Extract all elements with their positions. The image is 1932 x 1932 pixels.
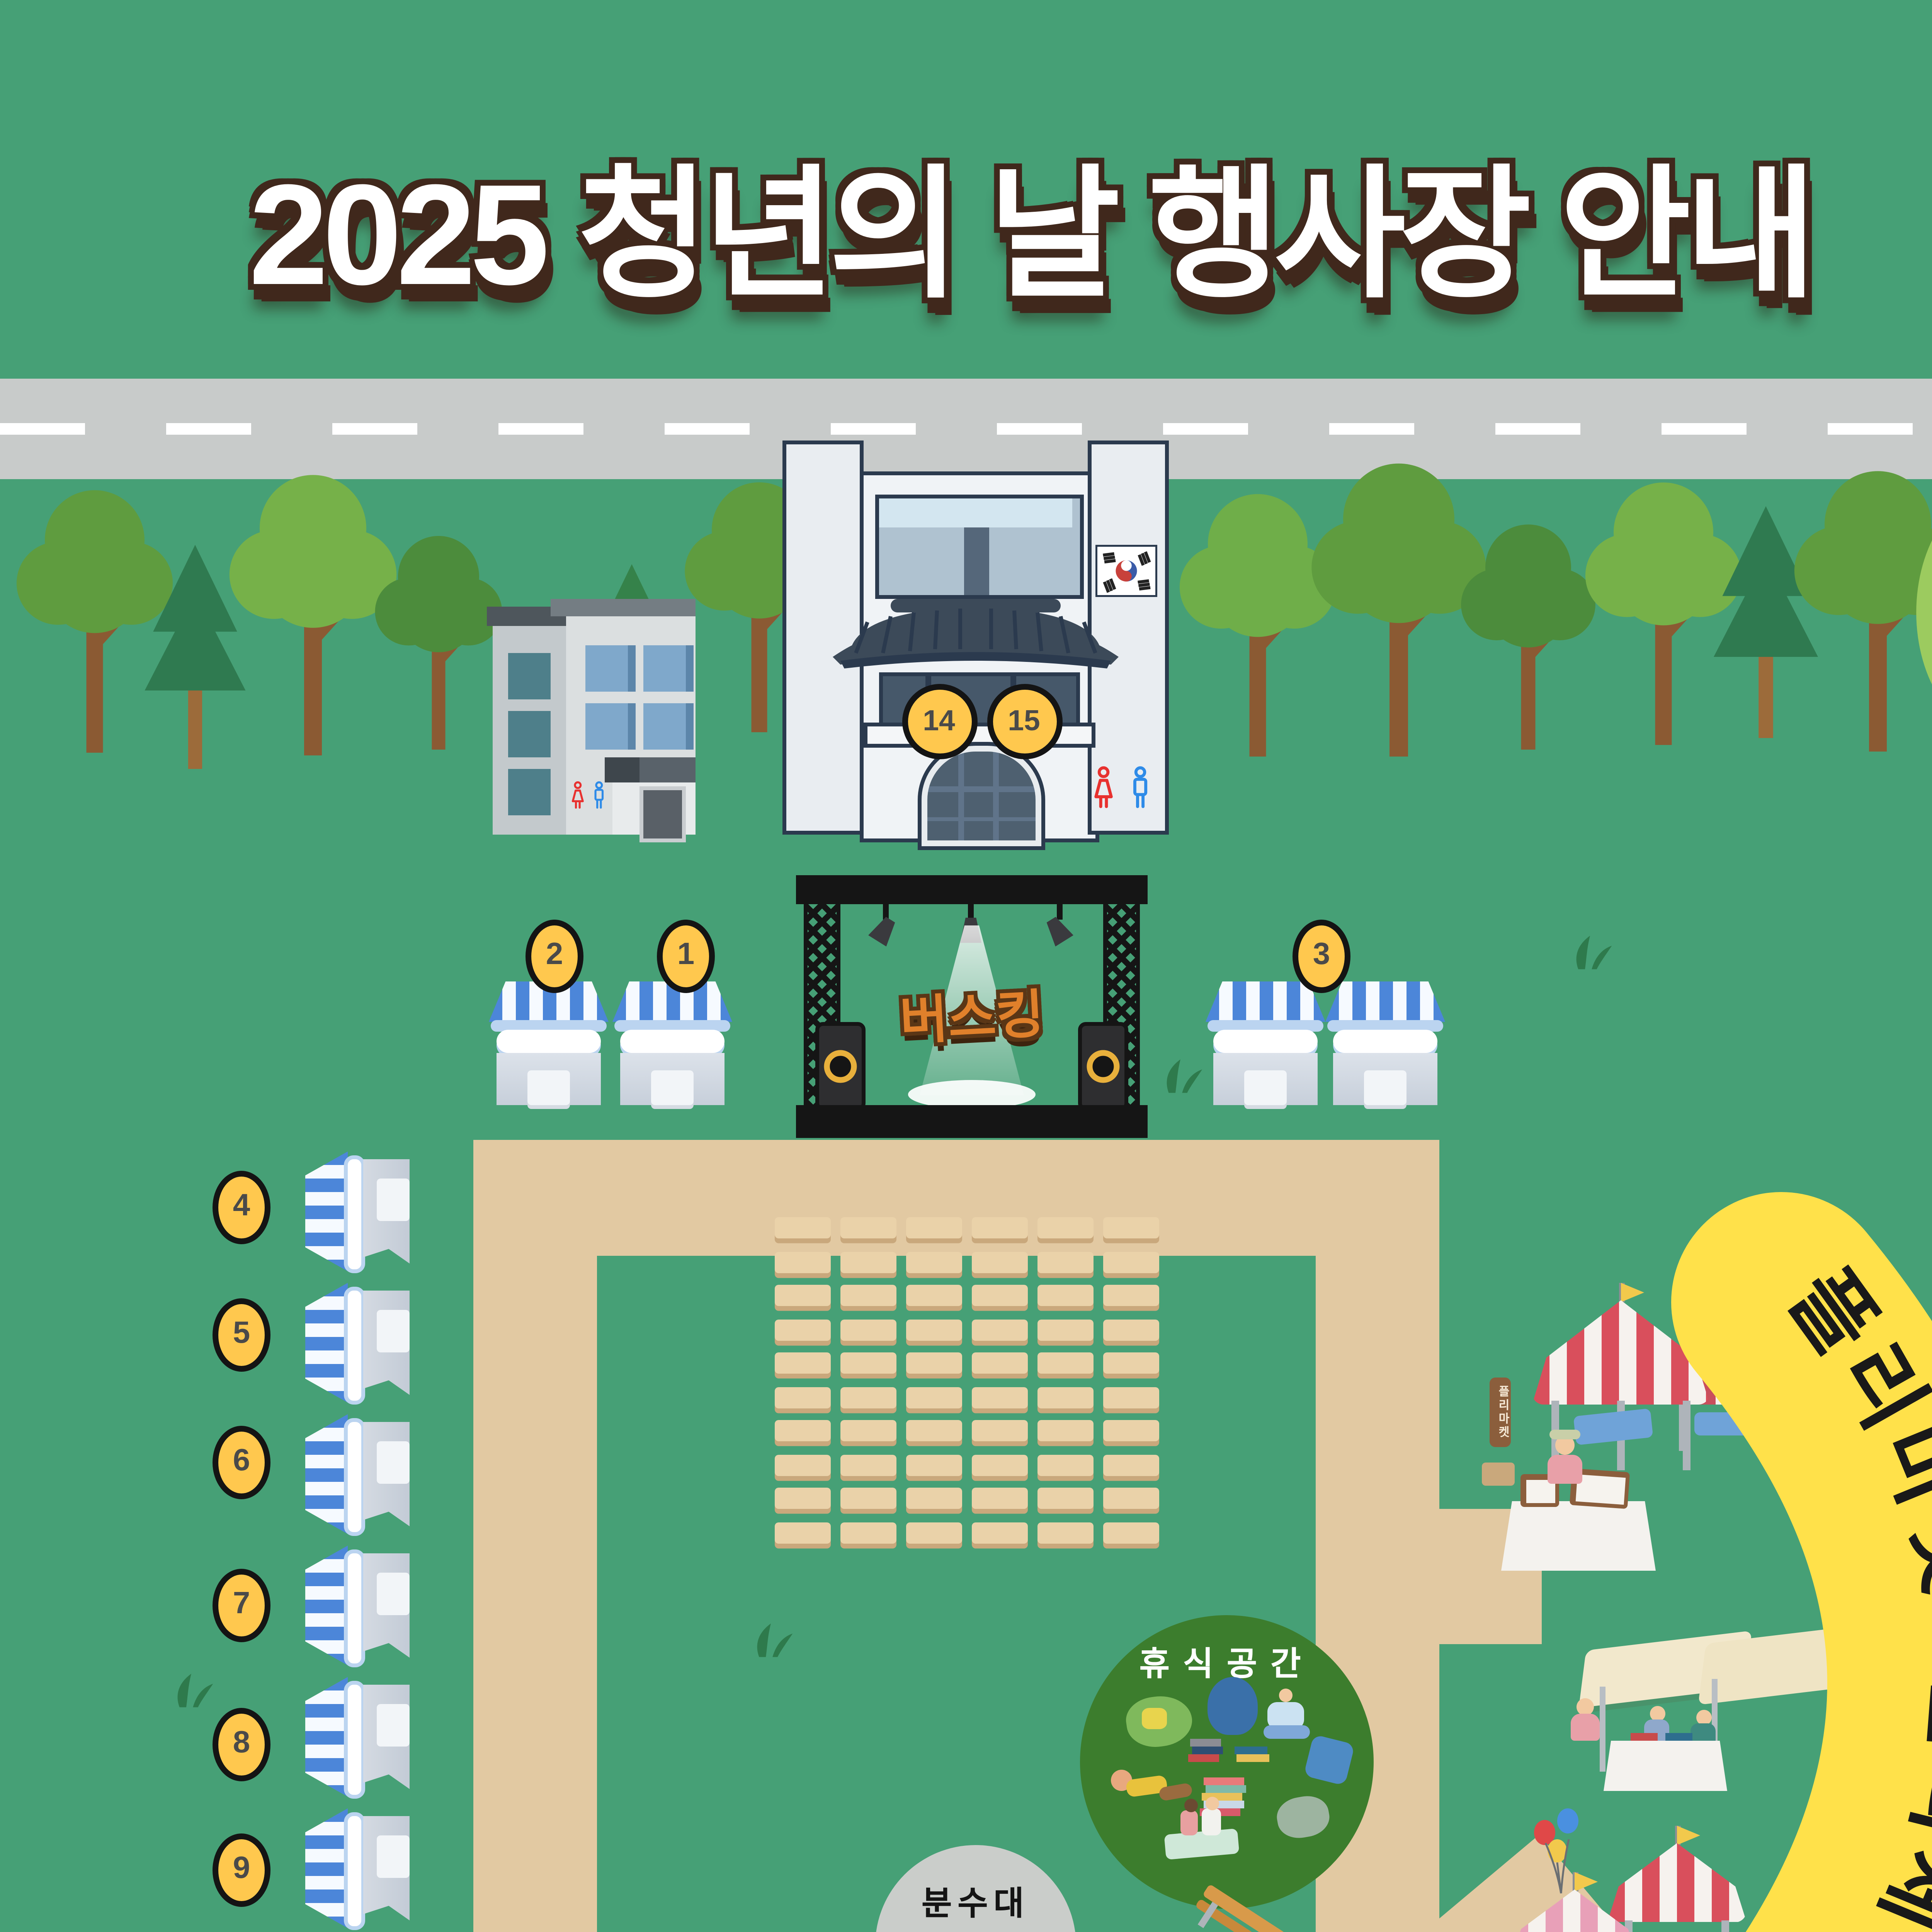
- bench-seat: [775, 1352, 831, 1374]
- bench-seat: [972, 1488, 1028, 1509]
- bench-seat: [906, 1285, 962, 1306]
- bench-seat: [906, 1352, 962, 1374]
- booth-marker-number: 7: [233, 1588, 250, 1623]
- grass-icon: [1565, 935, 1615, 980]
- booth-marker-number: 14: [923, 705, 955, 738]
- road-lane-dashes: [0, 423, 1932, 435]
- fountain-label: 분수대: [875, 1876, 1076, 1924]
- path-left: [473, 1140, 597, 1932]
- bench-seat: [840, 1522, 896, 1543]
- bench-seat: [1103, 1420, 1159, 1441]
- bench-seat: [1037, 1522, 1094, 1543]
- fountain: 분수대: [875, 1845, 1076, 1932]
- bench-seat: [972, 1285, 1028, 1306]
- bench-seat: [840, 1386, 896, 1408]
- bench-seat: [775, 1420, 831, 1441]
- bench-seat: [906, 1488, 962, 1509]
- bench-seat: [840, 1352, 896, 1374]
- bench-seat: [840, 1251, 896, 1272]
- booth-tent: [305, 1151, 410, 1271]
- tree-icon: [1457, 522, 1600, 750]
- booth-marker-number: 2: [546, 939, 563, 974]
- bench-seat: [775, 1522, 831, 1543]
- grass-icon: [1155, 1059, 1206, 1103]
- bench-seat: [972, 1454, 1028, 1475]
- booth-marker-number: 6: [233, 1445, 250, 1480]
- bench-seat: [1037, 1352, 1094, 1374]
- hanok-roof: [829, 583, 1122, 676]
- booth-marker-2: 2: [526, 920, 583, 993]
- booth-marker-number: 4: [233, 1190, 250, 1225]
- booth-tent: [305, 1546, 410, 1665]
- flea-market-sign: 플리마켓: [1490, 1378, 1511, 1447]
- bench-seat: [775, 1488, 831, 1509]
- bench-seat: [972, 1352, 1028, 1374]
- bench-seat: [1037, 1251, 1094, 1272]
- bench-seat: [1037, 1319, 1094, 1340]
- bench-seat: [775, 1251, 831, 1272]
- bench-seat: [775, 1454, 831, 1475]
- bench-seat: [972, 1420, 1028, 1441]
- bench-seat: [1103, 1251, 1159, 1272]
- bench-seat: [1103, 1522, 1159, 1543]
- bench-seat: [906, 1319, 962, 1340]
- path-top: [473, 1140, 1439, 1256]
- restroom-building: [493, 599, 696, 835]
- bench-seat: [906, 1454, 962, 1475]
- bench-seat: [906, 1217, 962, 1238]
- bench-seat: [840, 1319, 896, 1340]
- bench-seat: [906, 1386, 962, 1408]
- booth-marker-8: 8: [213, 1708, 270, 1781]
- booth-tent: [1206, 981, 1325, 1105]
- booth-marker-3: 3: [1293, 920, 1350, 993]
- grass-icon: [166, 1673, 216, 1718]
- tree-icon: [1913, 479, 1932, 764]
- booth-marker-number: 3: [1313, 939, 1330, 974]
- bench-seat: [972, 1522, 1028, 1543]
- bench-seat: [840, 1285, 896, 1306]
- bench-seat: [1103, 1488, 1159, 1509]
- tree-icon: [371, 533, 506, 750]
- bench-seat: [1037, 1386, 1094, 1408]
- bench-seat: [840, 1488, 896, 1509]
- bench-seat: [1103, 1217, 1159, 1238]
- bench-seat: [906, 1420, 962, 1441]
- female-restroom-icon: [1092, 765, 1116, 815]
- bench-seat: [1103, 1352, 1159, 1374]
- bench-seat: [1037, 1217, 1094, 1238]
- booth-tent: [305, 1808, 410, 1928]
- bench-seat: [1103, 1285, 1159, 1306]
- bench-seat: [972, 1251, 1028, 1272]
- bench-seat: [775, 1285, 831, 1306]
- bench-seat: [840, 1420, 896, 1441]
- bench-seat: [1037, 1285, 1094, 1306]
- bench-seat: [1103, 1319, 1159, 1340]
- booth-marker-9: 9: [213, 1833, 270, 1907]
- bench-seat: [1037, 1420, 1094, 1441]
- bench-seat: [972, 1319, 1028, 1340]
- booth-marker-number: 8: [233, 1727, 250, 1762]
- booth-marker-6: 6: [213, 1426, 270, 1499]
- booth-tent: [612, 981, 732, 1105]
- bench-seat: [1037, 1454, 1094, 1475]
- bench-seat: [840, 1217, 896, 1238]
- flea-market-banner: 플리마켓&문화체험: [1596, 1159, 1932, 1932]
- bench-seat: [775, 1217, 831, 1238]
- booth-marker-number: 5: [233, 1318, 250, 1352]
- stage: 버스킹: [800, 875, 1144, 1138]
- bench-seat: [906, 1522, 962, 1543]
- bench-seat: [775, 1386, 831, 1408]
- bench-seat: [840, 1454, 896, 1475]
- booth-tent: [305, 1414, 410, 1534]
- page-title: 2025 청년의 날 행사장 안내: [0, 120, 1932, 327]
- booth-tent: [305, 1677, 410, 1797]
- booth-marker-5: 5: [213, 1298, 270, 1372]
- grass-icon: [746, 1623, 796, 1667]
- booth-marker-number: 1: [677, 939, 695, 974]
- event-map-poster: 2025 청년의 날 행사장 안내: [0, 0, 1932, 1932]
- bench-seat: [1103, 1454, 1159, 1475]
- bench-seat: [906, 1251, 962, 1272]
- bench-seat: [1103, 1386, 1159, 1408]
- bench-seat: [972, 1217, 1028, 1238]
- bench-seat: [775, 1319, 831, 1340]
- male-restroom-icon: [591, 781, 607, 813]
- booth-marker-1: 1: [657, 920, 715, 993]
- booth-tent: [489, 981, 609, 1105]
- main-building: [782, 440, 1169, 835]
- booth-marker-7: 7: [213, 1569, 270, 1642]
- booth-marker-number: 15: [1008, 705, 1040, 738]
- booth-marker-4: 4: [213, 1171, 270, 1244]
- booth-marker-number: 9: [233, 1853, 250, 1888]
- booth-tent: [1325, 981, 1445, 1105]
- bench-seat: [972, 1386, 1028, 1408]
- booth-tent: [305, 1283, 410, 1403]
- male-restroom-icon: [1128, 765, 1152, 815]
- bench-seat: [1037, 1488, 1094, 1509]
- female-restroom-icon: [570, 781, 586, 813]
- tree-icon: [1789, 468, 1932, 752]
- rest-area: 휴식공간: [1080, 1615, 1374, 1909]
